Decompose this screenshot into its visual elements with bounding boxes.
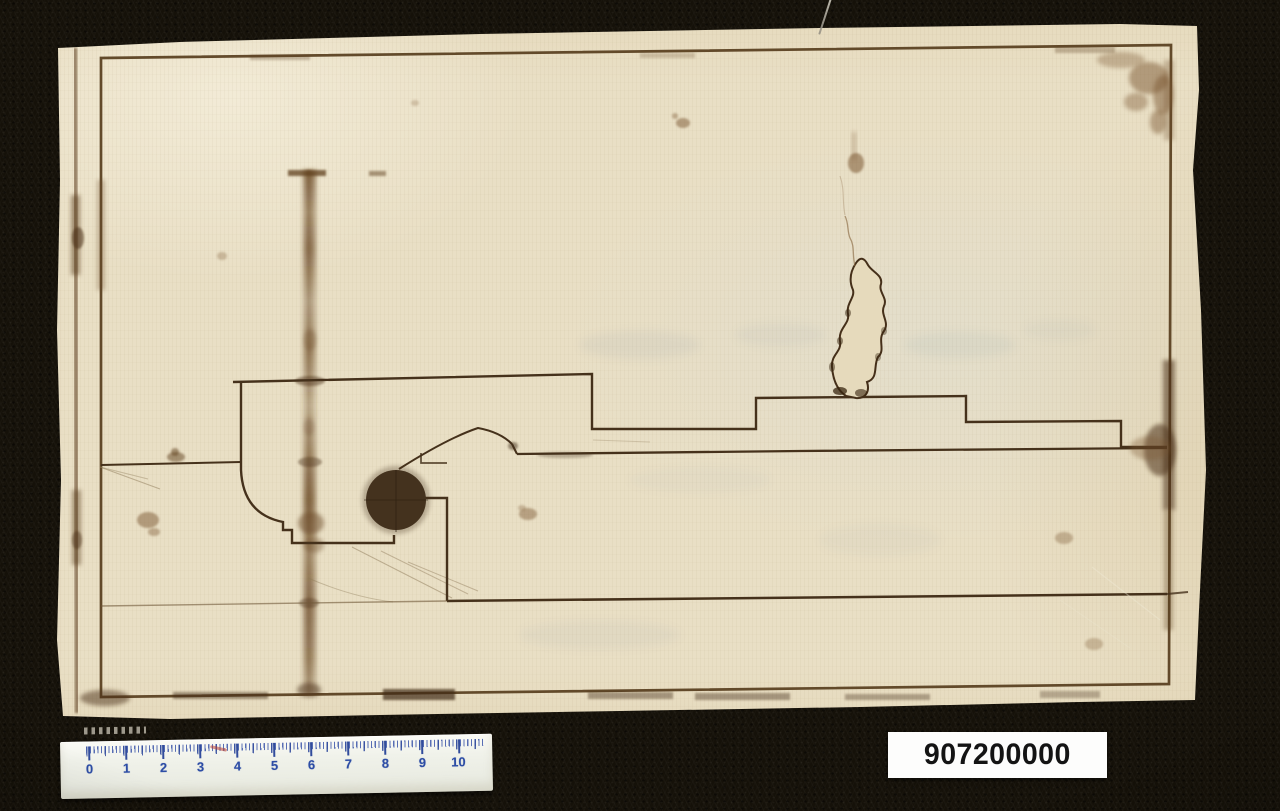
- fold-stain-band: [288, 170, 386, 697]
- ruler-major-tick: [384, 741, 386, 755]
- ruler-number: 4: [229, 758, 245, 773]
- catalog-number-label: 907200000: [888, 732, 1107, 778]
- molding-profile: [101, 374, 1188, 606]
- drawing-ink-layer: [0, 0, 1280, 811]
- ruler-number: 0: [81, 761, 97, 776]
- ruler-half-ticks: [86, 739, 478, 757]
- ruler-major-tick: [125, 746, 127, 760]
- ruler-major-tick: [88, 746, 90, 760]
- scan-backdrop: 0 1 2 3 4 5 6 7 8 9 10 907200000: [0, 0, 1280, 811]
- catalog-number-text: 907200000: [924, 738, 1071, 772]
- ruler-major-tick: [199, 744, 201, 758]
- ruler-number: 10: [450, 754, 466, 769]
- ruler-number: 9: [414, 755, 430, 770]
- ruler-major-tick: [458, 739, 460, 753]
- frame-border: [80, 45, 1175, 706]
- manuscript-sheet: [0, 0, 1280, 811]
- ruler-number: 7: [340, 756, 356, 771]
- ruler-number: 1: [118, 761, 134, 776]
- ruler-number: 2: [155, 760, 171, 775]
- paper-left-edge-stain: [71, 48, 84, 713]
- ruler-major-tick: [273, 743, 275, 757]
- ruler-number: 5: [266, 758, 282, 773]
- torus-circle: [362, 466, 430, 534]
- ruler-number: 6: [303, 757, 319, 772]
- ruler-number: 3: [192, 759, 208, 774]
- ruler-major-tick: [421, 740, 423, 754]
- scale-ruler: 0 1 2 3 4 5 6 7 8 9 10: [60, 734, 493, 799]
- mount-perforation-strip: [84, 726, 146, 734]
- flame-tear: [829, 176, 887, 398]
- ruler-major-tick: [162, 745, 164, 759]
- ruler-major-tick: [347, 741, 349, 755]
- crease-highlights: [1060, 567, 1160, 648]
- ruler-major-tick: [236, 744, 238, 758]
- ruler-number: 8: [377, 756, 393, 771]
- ruler-major-tick: [310, 742, 312, 756]
